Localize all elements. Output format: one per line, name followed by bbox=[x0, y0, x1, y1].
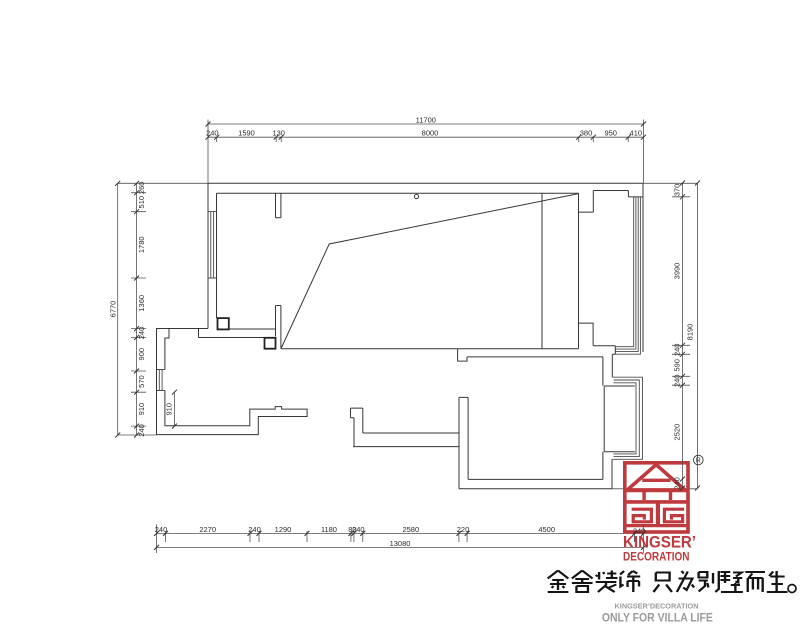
svg-text:1180: 1180 bbox=[321, 525, 337, 534]
svg-text:220: 220 bbox=[457, 525, 470, 534]
svg-text:2520: 2520 bbox=[673, 424, 682, 441]
svg-text:ONLY FOR VILLA LIFE: ONLY FOR VILLA LIFE bbox=[602, 613, 713, 625]
svg-text:910: 910 bbox=[165, 403, 174, 416]
svg-text:8000: 8000 bbox=[422, 129, 439, 138]
svg-text:1290: 1290 bbox=[275, 525, 292, 534]
svg-text:8190: 8190 bbox=[685, 324, 694, 341]
svg-text:410: 410 bbox=[630, 129, 643, 138]
svg-text:6770: 6770 bbox=[109, 301, 118, 318]
svg-text:240: 240 bbox=[673, 477, 682, 490]
svg-text:510: 510 bbox=[137, 196, 146, 209]
svg-text:910: 910 bbox=[137, 403, 146, 416]
svg-text:KINGSER’DECORATION: KINGSER’DECORATION bbox=[615, 602, 699, 611]
svg-text:13080: 13080 bbox=[390, 539, 411, 548]
svg-text:1780: 1780 bbox=[137, 236, 146, 253]
svg-text:950: 950 bbox=[604, 129, 617, 138]
svg-text:DECORATION: DECORATION bbox=[623, 550, 690, 564]
svg-text:2270: 2270 bbox=[199, 525, 216, 534]
svg-text:240: 240 bbox=[137, 327, 146, 340]
svg-text:370: 370 bbox=[673, 184, 682, 197]
svg-text:130: 130 bbox=[272, 129, 285, 138]
svg-text:1360: 1360 bbox=[137, 295, 146, 312]
svg-text:240: 240 bbox=[206, 129, 219, 138]
svg-text:2580: 2580 bbox=[402, 525, 419, 534]
svg-text:260: 260 bbox=[137, 182, 146, 195]
svg-text:240: 240 bbox=[352, 525, 365, 534]
svg-text:240: 240 bbox=[673, 375, 682, 388]
svg-text:240: 240 bbox=[155, 525, 168, 534]
svg-text:R: R bbox=[696, 458, 701, 465]
svg-text:240: 240 bbox=[248, 525, 261, 534]
svg-text:380: 380 bbox=[580, 129, 593, 138]
svg-text:240: 240 bbox=[137, 424, 146, 437]
svg-text:4500: 4500 bbox=[538, 525, 555, 534]
svg-text:3990: 3990 bbox=[673, 263, 682, 280]
svg-text:590: 590 bbox=[673, 359, 682, 372]
svg-text:1590: 1590 bbox=[238, 129, 255, 138]
svg-text:900: 900 bbox=[137, 348, 146, 361]
svg-text:11700: 11700 bbox=[416, 116, 436, 125]
svg-text:570: 570 bbox=[137, 375, 146, 388]
svg-text:240: 240 bbox=[673, 344, 682, 357]
